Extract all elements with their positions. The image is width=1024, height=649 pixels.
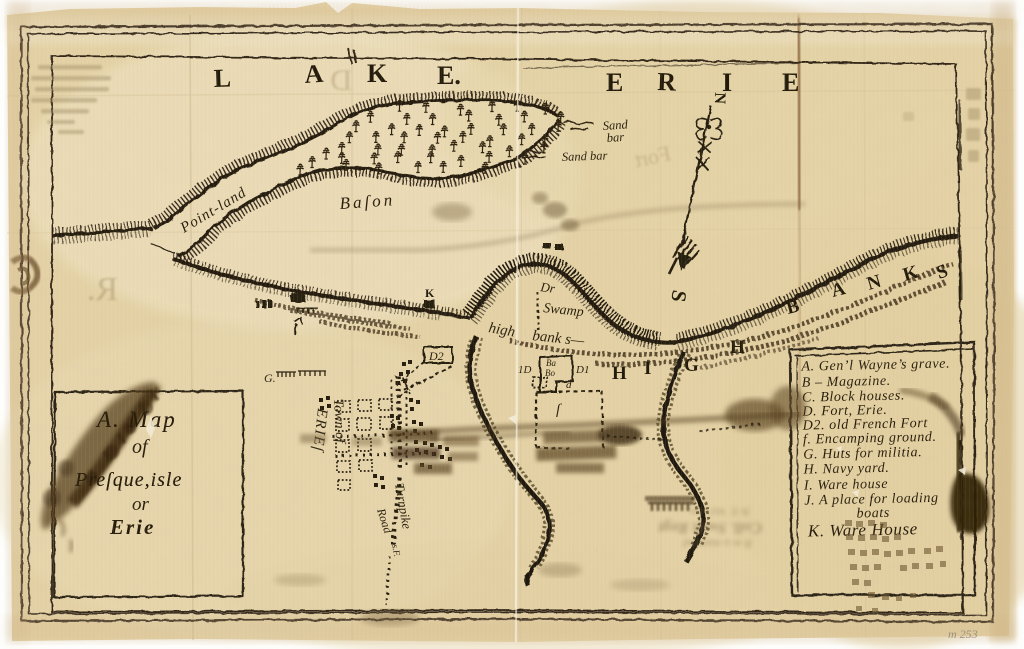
svg-text:m 253: m 253	[948, 627, 978, 641]
